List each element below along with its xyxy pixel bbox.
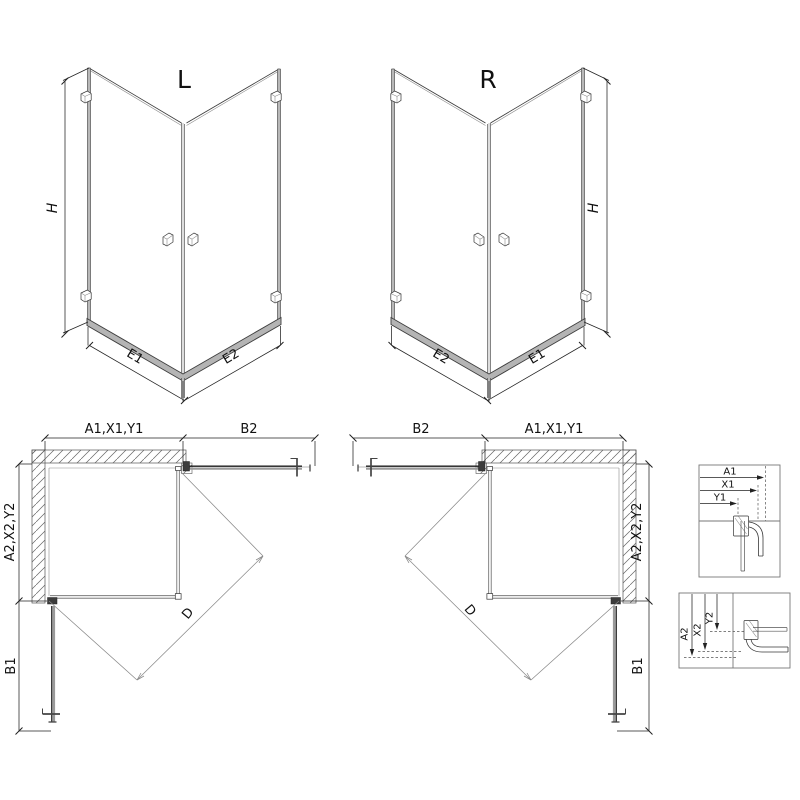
iso-left-geometry	[62, 68, 284, 404]
detail-bottom-profile-section	[744, 621, 788, 653]
iso-left-e2-dim: E2	[220, 346, 242, 367]
detail-box-top: A1 X1 Y1	[699, 465, 780, 577]
iso-view-right: R H E2 E1	[389, 65, 611, 404]
plan-left-a1-dim: A1,X1,Y1	[85, 422, 144, 437]
plan-left-b1-dim: B1	[4, 657, 19, 674]
detail-top-y1-label: Y1	[713, 493, 726, 504]
detail-bottom-a2-label: A2	[680, 627, 691, 640]
plan-view-right: B2 A1,X1,Y1 A2,X2,Y2 B1 D	[350, 422, 653, 735]
detail-bottom-x2-label: X2	[693, 623, 704, 636]
plan-right-b1-dim: B1	[631, 657, 646, 674]
iso-right-height-dim: H	[586, 202, 602, 213]
detail-top-x1-label: X1	[721, 480, 734, 491]
iso-left-height-dim: H	[45, 202, 61, 213]
wall-top-left-plan	[32, 450, 186, 463]
iso-view-left: L H E1 E2	[45, 65, 284, 404]
iso-left-e1-dim: E1	[124, 346, 146, 367]
wall-side-left-plan	[32, 450, 45, 603]
plan-left-a2-dim: A2,X2,Y2	[3, 503, 18, 562]
technical-drawing-page: L H E1 E2 R H E2 E1 A1,X1,Y1 B2 A2,X2,Y2…	[0, 0, 800, 800]
plan-right-a2-dim: A2,X2,Y2	[630, 503, 645, 562]
plan-right-a1-dim: A1,X1,Y1	[525, 422, 584, 437]
plan-left-b2-dim: B2	[240, 422, 257, 437]
iso-right-label: R	[479, 65, 496, 94]
iso-right-geometry	[389, 68, 611, 404]
shower-enclosure-diagram: L H E1 E2 R H E2 E1 A1,X1,Y1 B2 A2,X2,Y2…	[0, 0, 800, 800]
plan-right-d-dim: D	[461, 602, 479, 619]
plan-right-b2-dim: B2	[412, 422, 429, 437]
iso-right-e1-dim: E1	[526, 346, 548, 367]
plan-view-left: A1,X1,Y1 B2 A2,X2,Y2 B1 D	[3, 422, 319, 735]
iso-left-label: L	[177, 65, 191, 94]
plan-left-d-dim: D	[179, 605, 197, 622]
plan-right-geometry	[350, 435, 653, 735]
detail-bottom-y2-label: Y2	[705, 612, 716, 625]
detail-top-a1-label: A1	[723, 467, 736, 478]
detail-box-bottom: A2 X2 Y2	[679, 593, 790, 668]
plan-left-geometry	[16, 435, 319, 735]
iso-right-e2-dim: E2	[430, 346, 452, 367]
wall-top-right-plan	[482, 450, 636, 463]
detail-top-profile-section	[734, 516, 764, 571]
